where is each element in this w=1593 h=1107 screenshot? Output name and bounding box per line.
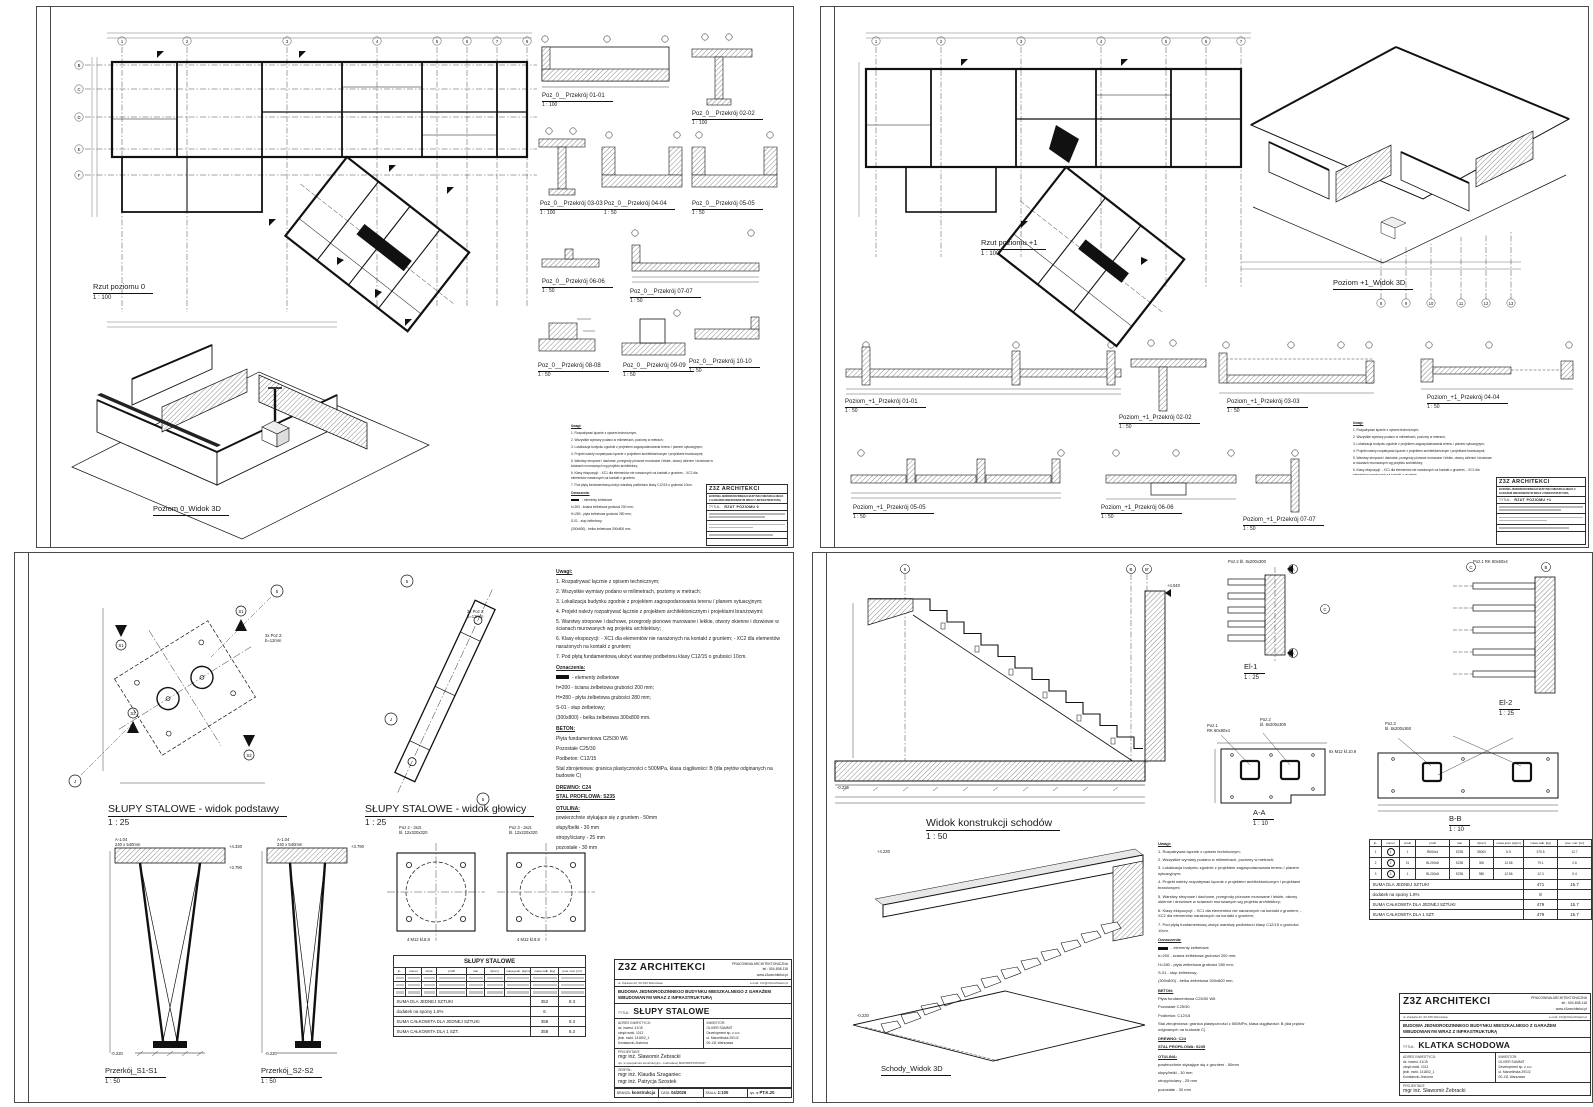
note-item: 6. Klasy ekspozycji: - XC1 dla elementów…: [1353, 468, 1493, 475]
axis-bubble: 5: [436, 39, 439, 44]
section-scale: 1 : 50: [1101, 515, 1182, 521]
skala-label: SKALA:: [706, 1091, 717, 1095]
project-name: BUDOWA JEDNORODZINNEGO BUDYNKU MIESZKALN…: [707, 494, 787, 504]
annotation-text: b=12mm: [467, 614, 483, 619]
col-header: numer: [406, 968, 422, 975]
cell: 0.4: [1558, 869, 1592, 880]
notes-block: Uwagi: 1. Rozpatrywać łącznie z opisem t…: [571, 424, 713, 544]
sum-area: [559, 1006, 586, 1016]
column-head-view: 5 J 5: [385, 575, 502, 805]
cut-marker-label: S2: [130, 711, 136, 716]
note-item: 2. Wszystkie wymiary podano w milimetrac…: [1158, 857, 1310, 863]
otulina-item: stropy/ściany - 25 mm: [1158, 1078, 1310, 1084]
cell: 12.56: [1494, 869, 1524, 880]
beton-item: Podbeton: C12/15: [1158, 1013, 1310, 1019]
plan-view-label: Rzut poziomu +11 : 100: [981, 239, 1046, 258]
firm-type: PRACOWNIA ARCHITEKTONICZNA: [732, 962, 788, 966]
col-header: masa całk. [kg]: [1524, 840, 1558, 847]
view-scale: 1 : 25: [108, 818, 287, 828]
notes-heading: Uwagi:: [556, 569, 788, 577]
sum-label: SUMA CAŁKOWITA DLA 1 SZT.: [1370, 910, 1524, 920]
view-title: SŁUPY STALOWE - widok głowicy: [365, 803, 534, 817]
cell: 2: [1370, 858, 1382, 869]
view-scale: 1 : 100: [981, 251, 1046, 258]
axis-bubble: 5: [406, 579, 409, 584]
beton-heading: BETON:: [556, 726, 788, 734]
cut-marker-label: S1: [238, 609, 244, 614]
legend-item: - elementy żelbetowe: [1171, 945, 1209, 950]
table-row: 2221BL200x8S23530012.5679.12.6: [1370, 858, 1592, 869]
axis-bubble: 1: [875, 39, 878, 44]
section-scale: 1 : 50: [1243, 527, 1324, 533]
floor-plan: [112, 51, 527, 344]
section-title: Poz_0__Przekrój 04-04: [604, 201, 675, 210]
inwestor-line: 00-131 Warszawa: [1499, 1075, 1588, 1080]
notes-heading: Uwagi:: [1158, 841, 1310, 847]
section-title: Poziom_+1_Przekrój 02-02: [1119, 415, 1200, 424]
zespol-name: mgr inż. Klaudia Szaganiec: [618, 1072, 788, 1079]
axis-bubble: 13: [1509, 301, 1514, 306]
axis-bubble: 4: [376, 39, 379, 44]
detail-label: Poz.1 RK 60x60x4: [1473, 559, 1508, 564]
col-header: stal: [1450, 840, 1470, 847]
notes-block: Uwagi: 1. Rozpatrywać łącznie z opisem t…: [556, 569, 788, 855]
firm-meta: PRACOWNIA ARCHITEKTONICZNAtel.: 504-808-…: [1531, 996, 1587, 1012]
axis-bubble: 5: [904, 567, 907, 572]
table-row: 331BL200x8S23598012.5612.30.4: [1370, 869, 1592, 880]
adres-line: Konstancin-Jeziorna: [1403, 1075, 1492, 1080]
cell: 980: [1470, 869, 1494, 880]
annotation-text: A-1.04: [115, 837, 127, 842]
section-label: Poz_0__Przekrój 10-101 : 50: [689, 359, 760, 375]
annotation-text: Poz.2: [1260, 717, 1271, 722]
legend-item: h=200 - ściana żelbetowa grubości 200 mm…: [1158, 953, 1310, 959]
title-block: Z3Z ARCHITEKCI PRACOWNIA ARCHITEKTONICZN…: [614, 959, 792, 1098]
section-label: Poz_0__Przekrój 04-041 : 50: [604, 201, 675, 217]
cell: 12.3: [1524, 869, 1558, 880]
view-title: Przerkój_S2-S2: [261, 1067, 322, 1078]
axis-bubble: B: [1545, 565, 1548, 570]
drewno-line: DREWNO: C24: [556, 785, 788, 793]
sum-area: 15.7: [1558, 910, 1592, 920]
section-title: Poziom_+1_Przekrój 07-07: [1243, 517, 1324, 526]
notes-block: Uwagi: 1. Rozpatrywać łącznie z opisem t…: [1158, 841, 1310, 1095]
axis-bubble: 8: [1380, 301, 1383, 306]
legend-item: H=280 - płyta żelbetowa grubości 280 mm;: [556, 695, 788, 703]
table-row: [394, 989, 586, 996]
sum-mass: 479: [1524, 910, 1558, 920]
otulina-item: pozostałe - 30 mm: [1158, 1087, 1310, 1093]
section-scale: 1 : 100: [692, 121, 763, 127]
cell: 1: [1400, 847, 1416, 858]
skala-cell: SKALA: 1:100: [703, 1089, 747, 1098]
projektant-upr: upr. w specjalności konstrukcyjno - budo…: [618, 1061, 788, 1065]
cell: 12.7: [1558, 847, 1592, 858]
tytul-label: TYTUŁ:: [618, 1011, 629, 1015]
annotation-text: RK 60x60x4: [1485, 559, 1508, 564]
cell: BL200x8: [1416, 869, 1450, 880]
note-item: 4. Projekt należy rozpatrywać łącznie z …: [571, 452, 713, 457]
section-scale: 1 : 50: [1427, 405, 1508, 411]
view-title: Poziom +1_Widok 3D: [1333, 279, 1413, 290]
firm-tel: tel.: 504-808-118: [1562, 1001, 1587, 1005]
view-title: Widok konstrukcji schodów: [926, 817, 1060, 831]
otulina-item: słupy/belki - 30 mm: [1158, 1070, 1310, 1076]
section-scale: 1 : 50: [604, 211, 675, 217]
note-item: 6. Klasy ekspozycji: - XC1 dla elementów…: [571, 471, 713, 480]
axis-bubble: B: [78, 63, 81, 68]
section-scale: 1 : 100: [540, 211, 611, 217]
col-header: lp.: [394, 968, 406, 975]
notes-block: Uwagi: 1. Rozpatrywać łącznie z opisem t…: [1353, 421, 1493, 475]
annotation-text: Poz.1: [1473, 559, 1484, 564]
beton-item: Pozostałe C25/30: [556, 746, 788, 754]
sum-label: SUMA CAŁKOWITA DLA JEDNEJ SZTUKI: [1370, 900, 1524, 910]
section-title: Poziom_+1_Przekrój 06-06: [1101, 505, 1182, 514]
legend-swatch: [556, 675, 569, 679]
view-scale: 1 : 25: [1499, 711, 1520, 718]
axis-bubble: C: [1469, 565, 1472, 570]
data-label: DATA:: [661, 1091, 670, 1095]
annotation-text: A-1.04: [277, 837, 289, 842]
firm-meta: PRACOWNIA ARCHITEKTONICZNAtel.: 504-808-…: [732, 962, 788, 978]
sum-mass: 352: [531, 996, 559, 1006]
detail-label: Poz 3 - 3szt.bl. 12x220x320: [509, 825, 537, 836]
inwestor-line: 00-131 Warszawa: [707, 1041, 789, 1046]
note-item: 3. Lokalizacja budynku zgodnie z projekt…: [571, 445, 713, 450]
beton-heading: BETON:: [1158, 988, 1310, 994]
sum-area: 8.3: [559, 1016, 586, 1026]
section-scale: 1 : 50: [1119, 425, 1200, 431]
note-item: 1. Rozpatrywać łącznie z opisem technicz…: [1353, 428, 1493, 433]
sum-label: dodatek na spoiny 1.8%: [1370, 890, 1524, 900]
section-cut-markers: [157, 51, 454, 326]
view-scale: 1 : 100: [93, 295, 153, 302]
section-label: Poziom_+1_Przekrój 07-071 : 50: [1243, 517, 1324, 533]
col-header: lp.: [1370, 840, 1382, 847]
axis-bubble: 2: [940, 39, 943, 44]
adres-cell: ADRES INWESTYCJI: dz. inwest. 41/15 obrę…: [1400, 1053, 1495, 1082]
section-title: Poz_0__Przekrój 01-01: [542, 93, 613, 102]
tytul-label: TYTUŁ:: [709, 505, 720, 509]
legend-item: - elementy żelbetowe: [582, 498, 612, 502]
view-label: A-A1 : 10: [1253, 809, 1274, 828]
beton-item: Płyta fundamentowa C25/30 W6: [1158, 996, 1310, 1002]
firm-www: www.z3zarchitekci.pl: [757, 973, 788, 977]
axis-bubble: 1: [121, 39, 124, 44]
view-title: B-B: [1449, 815, 1470, 826]
skala-value: 1:100: [718, 1090, 729, 1095]
view-scale: 1 : 50: [926, 832, 1060, 842]
sheet-klatka-schodowa: 5 B B': [812, 552, 1593, 1103]
view-title: Poziom 0_Widok 3D: [153, 505, 229, 516]
axis-bubble: 7: [1240, 39, 1243, 44]
note-item: 1. Rozpatrywać łącznie z opisem technicz…: [556, 579, 788, 587]
annotation-text: 3x Poz 2:: [467, 609, 484, 614]
sum-label: SUMA DLA JEDNEJ SZTUKI: [1370, 880, 1524, 890]
col-header: pow. mal. [m²]: [1558, 840, 1592, 847]
col-header: profil: [437, 968, 467, 975]
cell: S235: [1450, 847, 1470, 858]
section-title: Poziom_+1_Przekrój 04-04: [1427, 395, 1508, 404]
legend-item: - elementy żelbetowe: [572, 675, 619, 681]
table-sum-row: SUMA CAŁKOWITA DLA JEDNEJ SZTUKI3588.3: [394, 1016, 586, 1026]
projektant-row: PROJEKTANT: mgr inż. Sławomir Żebracki u…: [615, 1049, 791, 1067]
section-label: Poziom_+1_Przekrój 02-021 : 50: [1119, 415, 1200, 431]
axonometric-3d-view: [72, 345, 429, 539]
axis-bubble: 7: [496, 39, 499, 44]
section-title: Poziom_+1_Przekrój 03-03: [1227, 399, 1308, 408]
section-label: Poz_0__Przekrój 09-091 : 50: [623, 363, 694, 379]
oznaczenia-heading: Oznaczenia:: [571, 491, 713, 496]
axis-bubble: 6: [1205, 39, 1208, 44]
otulina-item: stropy/ściany - 25 mm: [556, 835, 788, 843]
note-item: 5. Warstwy stropowe i dachowe, przegrody…: [571, 459, 713, 468]
sum-area: 8.3: [559, 1026, 586, 1036]
note-item: 4. Projekt należy rozpatrywać łącznie z …: [1353, 449, 1493, 454]
detail-plate: bl. 12x320x320: [399, 830, 427, 835]
axis-bubble: D: [77, 115, 80, 120]
axis-bubble: 5: [482, 797, 485, 802]
legend-item: S-01 - słup żelbetowy;: [556, 705, 788, 713]
section-label: Poziom_+1_Przekrój 06-061 : 50: [1101, 505, 1182, 521]
axis-bubble: 10: [1429, 301, 1434, 306]
beton-item: Podbeton: C12/15: [556, 756, 788, 764]
cell: 3: [1370, 869, 1382, 880]
project-name: BUDOWA JEDNORODZINNEGO BUDYNKU MIESZKALN…: [1497, 487, 1585, 497]
note-item: 7. Pod płytą fundamentową ułożyć warstwę…: [1158, 922, 1310, 934]
annotation-text: 3x Poz 2:: [265, 633, 282, 638]
sum-mass: 358: [531, 1016, 559, 1026]
axis-bubble: 6: [466, 39, 469, 44]
view-label: SŁUPY STALOWE - widok podstawy1 : 25: [108, 803, 287, 828]
section-label: Poz_0__Przekrój 06-061 : 50: [542, 279, 613, 295]
sum-area: 8.3: [559, 996, 586, 1006]
section-scale: 1 : 50: [1227, 409, 1308, 415]
firm-address: ul. Żurawia 22, 00-515 Warszawa: [618, 981, 663, 985]
stairs-3d-view: [853, 849, 1145, 1061]
view-label: Widok konstrukcji schodów1 : 50: [926, 817, 1060, 842]
axis-bubble: J: [390, 717, 392, 722]
projektant-upr: upr. w specjalności konstrukcyjno - budo…: [1403, 1095, 1587, 1096]
section-scale: 1 : 50: [623, 373, 694, 379]
adres-line: Konstancin-Jeziorna: [618, 1041, 700, 1046]
note-item: 4. Projekt należy rozpatrywać łącznie z …: [1158, 879, 1310, 891]
axis-bubble: C: [77, 87, 80, 92]
section-label: Poz_0__Przekrój 07-071 : 50: [630, 289, 701, 305]
sum-mass: 471: [1524, 880, 1558, 890]
axis-bubble: 11: [1459, 301, 1464, 306]
legend-item: (300x800) - belka żelbetowa 300x800 mm.: [1158, 978, 1310, 984]
firm-name: Z3Z ARCHITEKCI: [1499, 479, 1550, 485]
axis-bubble: 4: [1100, 39, 1103, 44]
cell: 379.5: [1524, 847, 1558, 858]
sheet-title: RZUT POZIOMU 0: [724, 505, 759, 509]
sum-label: SUMA CAŁKOWITA DLA 1 SZT.: [394, 1026, 531, 1036]
beton-item: Stal zbrojeniowa: granica plastyczności …: [556, 766, 788, 781]
cell: 6.9: [1494, 847, 1524, 858]
view-label: El-21 : 25: [1499, 699, 1520, 718]
elevation-mark: -0.220: [265, 1051, 277, 1056]
stal-line: STAL PROFILOWA: S235: [1158, 1044, 1310, 1050]
column-base-plan-view: S1 S2 S2 S1 5 J: [69, 585, 287, 787]
col-header: sztuk: [1400, 840, 1416, 847]
oznaczenia-heading: Oznaczenia:: [1158, 937, 1310, 943]
sheet-title: SŁUPY STALOWE: [633, 1006, 709, 1016]
col-header: masa całk. [kg]: [531, 968, 559, 975]
section-title: Poz_0__Przekrój 07-07: [630, 289, 701, 298]
section-scale: 1 : 50: [538, 373, 609, 379]
axis-bubble: 2: [186, 39, 189, 44]
projektant-name: mgr inż. Sławomir Żebracki: [1403, 1088, 1587, 1095]
sum-mass: 479: [1524, 900, 1558, 910]
col-header: d[mm]: [485, 968, 505, 975]
section-title: Poz_0__Przekrój 05-05: [692, 201, 763, 210]
branza-cell: BRANŻA: konstrukcja: [615, 1089, 658, 1098]
axis-bubble: F: [78, 173, 81, 178]
note-item: 1. Rozpatrywać łącznie z opisem technicz…: [571, 431, 713, 436]
cell: 21: [1400, 858, 1416, 869]
annotation-text: b=12mm: [265, 638, 281, 643]
col-header: sztuk: [422, 968, 437, 975]
section-scale: 1 : 50: [630, 299, 701, 305]
project-name: BUDOWA JEDNORODZINNEGO BUDYNKU MIESZKALN…: [615, 987, 791, 1004]
view-label: Przerkój_S2-S21 : 50: [261, 1067, 322, 1086]
cell: S235: [1450, 869, 1470, 880]
cut-marker-label: S1: [118, 643, 124, 648]
sheet-slupy-stalowe: S1 S2 S2 S1 5 J 5 J 5: [14, 552, 794, 1103]
note-item: 5. Warstwy stropowe i dachowe, przegrody…: [1158, 894, 1310, 906]
elevation-mark: +3.790: [351, 844, 364, 849]
firm-email: e-mail: z3z@z3zarchitekci.pl: [750, 981, 788, 985]
rysnr-value: PT.K.20: [760, 1090, 775, 1095]
section-title: Poz_0__Przekrój 02-02: [692, 111, 763, 120]
legend-swatch: [1158, 947, 1168, 950]
view-title: Rzut poziomu 0: [93, 283, 153, 294]
sum-area: [1558, 890, 1592, 900]
cell: RK60x4: [1416, 847, 1450, 858]
section-title: Poz_0__Przekrój 09-09: [623, 363, 694, 372]
col-header: profil: [1416, 840, 1450, 847]
annotation: 3x Poz 2:b=12mm: [265, 633, 282, 644]
firm-address: ul. Żurawia 22, 00-515 Warszawa: [1403, 1015, 1448, 1019]
title-block: Z3Z ARCHITEKCI PRACOWNIA ARCHITEKTONICZN…: [1399, 993, 1591, 1096]
section-label: Poz_0__Przekrój 05-051 : 50: [692, 201, 763, 217]
axis-bubble: B': [1145, 567, 1149, 572]
axis-bubble: 5: [1165, 39, 1168, 44]
axis-bubble: C: [1323, 607, 1326, 612]
note-item: 2. Wszystkie wymiary podano w milimetrac…: [571, 438, 713, 443]
axis-bubble: E: [78, 147, 81, 152]
section-title: Poz_0__Przekrój 08-08: [538, 363, 609, 372]
firm-www: www.z3zarchitekci.pl: [1556, 1007, 1587, 1011]
section-label: Poziom_+1_Przekrój 05-051 : 50: [853, 505, 934, 521]
table-sum-row: dodatek na spoiny 1.8%6: [394, 1006, 586, 1016]
cell: 2.6: [1558, 858, 1592, 869]
table-sum-row: SUMA CAŁKOWITA DLA 1 SZT.47915.7: [1370, 910, 1592, 920]
el1-detail: A A C: [1228, 565, 1330, 662]
axis-bubble: 9: [1405, 301, 1408, 306]
legend-item: H=280 - płyta żelbetowa grubości 280 mm;: [571, 512, 713, 517]
title-block-footer: BRANŻA: konstrukcja DATA: 04/2026 SKALA:…: [615, 1088, 791, 1098]
view3d-label: Poziom +1_Widok 3D: [1333, 279, 1413, 290]
rysnr-cell: rys. nr PT.K.20: [747, 1089, 791, 1098]
table-title: SŁUPY STALOWE: [394, 956, 586, 968]
elevation-mark: +4.040: [1167, 583, 1180, 588]
cell: 55000: [1470, 847, 1494, 858]
view-label: B-B1 : 10: [1449, 815, 1470, 834]
firm-tel: tel.: 504-808-118: [763, 967, 788, 971]
inwestor-cell: INWESTOR: OLIVER SUMMIT Development sp. …: [703, 1019, 792, 1048]
section-scale: 1 : 50: [542, 289, 613, 295]
detail-label: Poz.3bl. 8x200x360: [1385, 721, 1411, 732]
legend-item: h=200 - ściana żelbetowa grubości 200 mm…: [556, 685, 788, 693]
elevation-mark: -0.220: [857, 1013, 869, 1018]
sum-mass: 6: [531, 1006, 559, 1016]
detail-label: Poz.2bl. 8x200x300: [1260, 717, 1286, 728]
view-scale: 1 : 25: [1244, 675, 1265, 682]
table-row: [394, 975, 586, 982]
legend-item: (300x800) - belka żelbetowa 300x800 mm.: [571, 527, 713, 532]
cell: 12.56: [1494, 858, 1524, 869]
projektant-name: mgr inż. Sławomir Żebracki: [618, 1054, 788, 1061]
view3d-label: Poziom 0_Widok 3D: [153, 505, 229, 516]
sheet-rzut-poziomu-plus1: 1 2 3 4 5 6 7 8 9 10 11 12 13: [820, 6, 1589, 548]
cell: BL200x8: [1416, 858, 1450, 869]
beton-item: Pozostałe C25/30: [1158, 1004, 1310, 1010]
annotation-text: bl. 8x200x300: [1260, 722, 1286, 727]
zespol-row: ZESPÓŁ: mgr inż. Klaudia Szaganiec mgr i…: [615, 1067, 791, 1088]
detail-plate: bl. 12x220x320: [509, 830, 537, 835]
oznaczenia-heading: Oznaczenia:: [556, 665, 788, 673]
drewno-line: DREWNO: C24: [1158, 1036, 1310, 1042]
section-label: Poz_0__Przekrój 01-011 : 100: [542, 93, 613, 109]
note-item: 6. Klasy ekspozycji: - XC1 dla elementów…: [556, 636, 788, 651]
otulina-heading: OTULINA:: [556, 806, 788, 814]
zespol-name: mgr inż. Patrycja Szostek: [618, 1079, 788, 1086]
otulina-item: powierzchnie stykające się z gruntem - 5…: [556, 815, 788, 823]
data-value: 04/2026: [671, 1090, 686, 1095]
steel-schedule-table: lp.numersztukprofilstald[mm]masa jedn. […: [1369, 839, 1592, 920]
adres-cell: ADRES INWESTYCJI: dz. inwest. 41/15 obrę…: [615, 1019, 703, 1048]
sum-mass: 358: [531, 1026, 559, 1036]
elevation-mark: +4.230: [877, 849, 890, 854]
view-scale: 1 : 10: [1253, 821, 1274, 828]
bolt-note: 4 M12 kl.8.8: [407, 937, 430, 942]
axis-bubble: B: [1130, 567, 1133, 572]
aa-plate-detail: [1215, 733, 1327, 803]
view-scale: 1 : 50: [105, 1079, 166, 1086]
cell: 1: [1370, 847, 1382, 858]
view-title: El-2: [1499, 699, 1520, 710]
section-title: Poz_0__Przekrój 06-06: [542, 279, 613, 288]
section-title: Poz_0__Przekrój 03-03: [540, 201, 611, 210]
section-scale: 1 : 50: [692, 211, 763, 217]
tytul-label: TYTUŁ:: [1403, 1045, 1414, 1049]
view-label: El-11 : 25: [1244, 663, 1265, 682]
section-title: Poziom_+1_Przekrój 01-01: [845, 399, 926, 408]
view-title: SŁUPY STALOWE - widok podstawy: [108, 803, 287, 817]
notes-heading: Uwagi:: [1353, 421, 1493, 426]
detail-title: Poz 3 - 3szt.: [509, 825, 532, 830]
column-elevation-s2: [262, 848, 347, 1053]
section-scale: 1 : 50: [689, 369, 760, 375]
annotation-text: 240 x 540mm: [277, 842, 302, 847]
elevation-mark: +3.790: [229, 865, 242, 870]
section-label: Poz_0__Przekrój 03-031 : 100: [540, 201, 611, 217]
table-sum-row: SUMA DLA JEDNEJ SZTUKI3528.3: [394, 996, 586, 1006]
annotation-text: RK 60x60x4: [1207, 728, 1230, 733]
